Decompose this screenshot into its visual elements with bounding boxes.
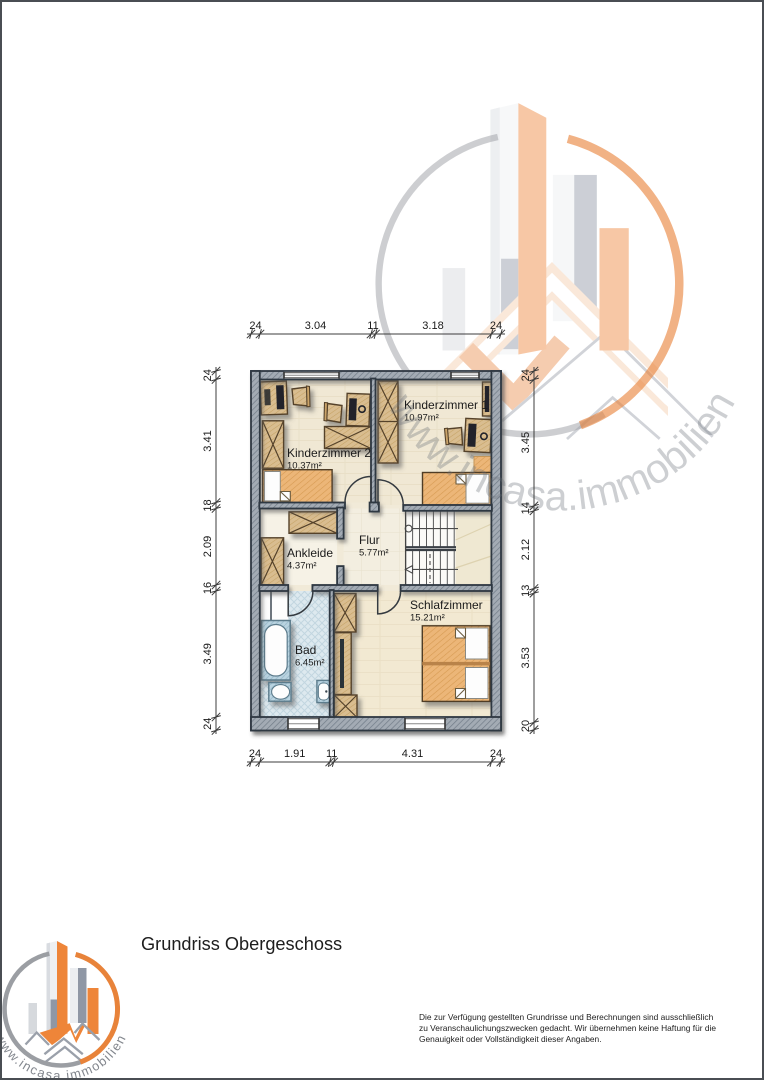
svg-text:18: 18: [202, 499, 214, 511]
svg-text:16: 16: [202, 582, 214, 594]
svg-text:3.53: 3.53: [520, 647, 532, 668]
svg-text:2.09: 2.09: [202, 536, 214, 557]
svg-text:10.37m²: 10.37m²: [287, 461, 322, 472]
svg-text:Grundriss Obergeschoss: Grundriss Obergeschoss: [141, 934, 342, 954]
svg-text:Genauigkeit oder Vollständigke: Genauigkeit oder Vollständigkeit dieser …: [419, 1034, 602, 1044]
svg-text:3.49: 3.49: [202, 643, 214, 664]
svg-text:4.37m²: 4.37m²: [287, 561, 317, 572]
svg-text:11: 11: [367, 320, 378, 332]
svg-text:13: 13: [520, 585, 532, 597]
svg-text:1.91: 1.91: [284, 748, 305, 760]
svg-text:11: 11: [326, 748, 337, 760]
svg-text:2.12: 2.12: [520, 539, 532, 560]
svg-text:24: 24: [202, 718, 214, 730]
svg-text:Kinderzimmer 2: Kinderzimmer 2: [287, 446, 371, 460]
svg-text:15.21m²: 15.21m²: [410, 613, 445, 624]
svg-text:6.45m²: 6.45m²: [295, 658, 325, 669]
svg-text:3.41: 3.41: [202, 430, 214, 451]
svg-text:20: 20: [520, 720, 532, 732]
svg-text:zu Veranschaulichungszwecken g: zu Veranschaulichungszwecken gedacht. Wi…: [419, 1023, 716, 1033]
svg-text:3.04: 3.04: [305, 320, 326, 332]
svg-text:Ankleide: Ankleide: [287, 546, 333, 560]
svg-text:Die zur Verfügung gestellten G: Die zur Verfügung gestellten Grundrisse …: [419, 1012, 714, 1022]
svg-text:24: 24: [249, 320, 261, 332]
svg-text:4.31: 4.31: [402, 748, 423, 760]
svg-text:Flur: Flur: [359, 533, 380, 547]
svg-text:14: 14: [520, 502, 532, 514]
svg-text:Schlafzimmer: Schlafzimmer: [410, 598, 483, 612]
svg-text:Bad: Bad: [295, 643, 316, 657]
svg-text:3.18: 3.18: [422, 320, 443, 332]
svg-text:24: 24: [249, 748, 261, 760]
svg-text:24: 24: [202, 369, 214, 381]
svg-text:24: 24: [490, 320, 502, 332]
svg-text:24: 24: [520, 369, 532, 381]
svg-text:5.77m²: 5.77m²: [359, 548, 389, 559]
svg-text:24: 24: [490, 748, 502, 760]
svg-text:3.45: 3.45: [520, 432, 532, 453]
